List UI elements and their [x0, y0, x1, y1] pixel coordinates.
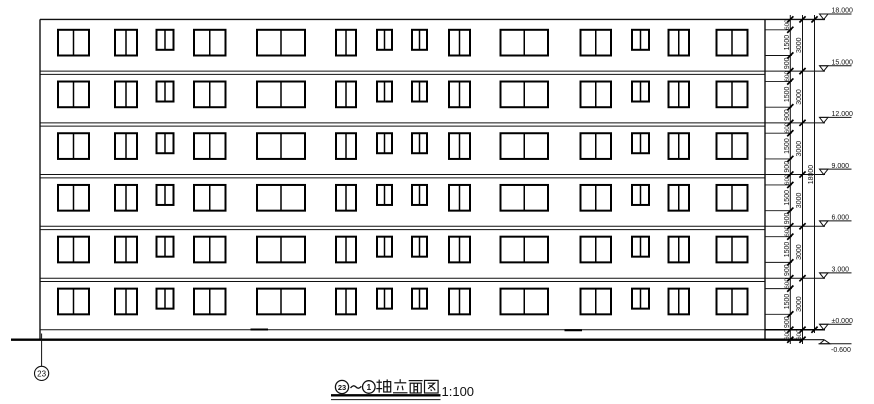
svg-text:600: 600 — [784, 226, 791, 237]
svg-text:1500: 1500 — [784, 242, 791, 258]
svg-text:1500: 1500 — [784, 190, 791, 206]
svg-text:600: 600 — [784, 278, 791, 289]
svg-text:6.000: 6.000 — [832, 214, 850, 221]
svg-text:1500: 1500 — [784, 138, 791, 154]
svg-text:900: 900 — [784, 57, 791, 69]
svg-text:900: 900 — [784, 161, 791, 173]
svg-text:600: 600 — [784, 71, 791, 82]
svg-text:900: 900 — [784, 109, 791, 121]
svg-text:900: 900 — [784, 316, 791, 328]
svg-text:9.000: 9.000 — [832, 163, 850, 170]
svg-text:23: 23 — [37, 369, 46, 378]
svg-text:1500: 1500 — [784, 86, 791, 102]
svg-text:1: 1 — [367, 383, 372, 392]
svg-text:600: 600 — [796, 329, 803, 340]
svg-text:3000: 3000 — [796, 296, 803, 312]
svg-text:1500: 1500 — [784, 294, 791, 310]
svg-text:900: 900 — [784, 264, 791, 276]
svg-text:3000: 3000 — [796, 244, 803, 260]
svg-text:600: 600 — [784, 19, 791, 30]
svg-text:600: 600 — [784, 174, 791, 185]
svg-text:1:100: 1:100 — [442, 384, 475, 399]
svg-text:15.000: 15.000 — [832, 59, 854, 66]
svg-text:1500: 1500 — [784, 35, 791, 51]
svg-text:18000: 18000 — [808, 165, 815, 185]
svg-text:18.000: 18.000 — [832, 8, 854, 15]
svg-text:3000: 3000 — [796, 193, 803, 209]
svg-text:23: 23 — [338, 383, 346, 392]
svg-text:900: 900 — [784, 213, 791, 225]
svg-text:-0.600: -0.600 — [831, 347, 851, 354]
svg-text:±0.000: ±0.000 — [832, 318, 853, 325]
svg-text:600: 600 — [784, 122, 791, 133]
svg-text:3000: 3000 — [796, 37, 803, 53]
svg-text:3000: 3000 — [796, 141, 803, 157]
svg-text:12.000: 12.000 — [832, 111, 854, 118]
svg-text:3.000: 3.000 — [832, 266, 850, 273]
svg-text:3000: 3000 — [796, 89, 803, 105]
svg-text:600: 600 — [784, 329, 791, 340]
